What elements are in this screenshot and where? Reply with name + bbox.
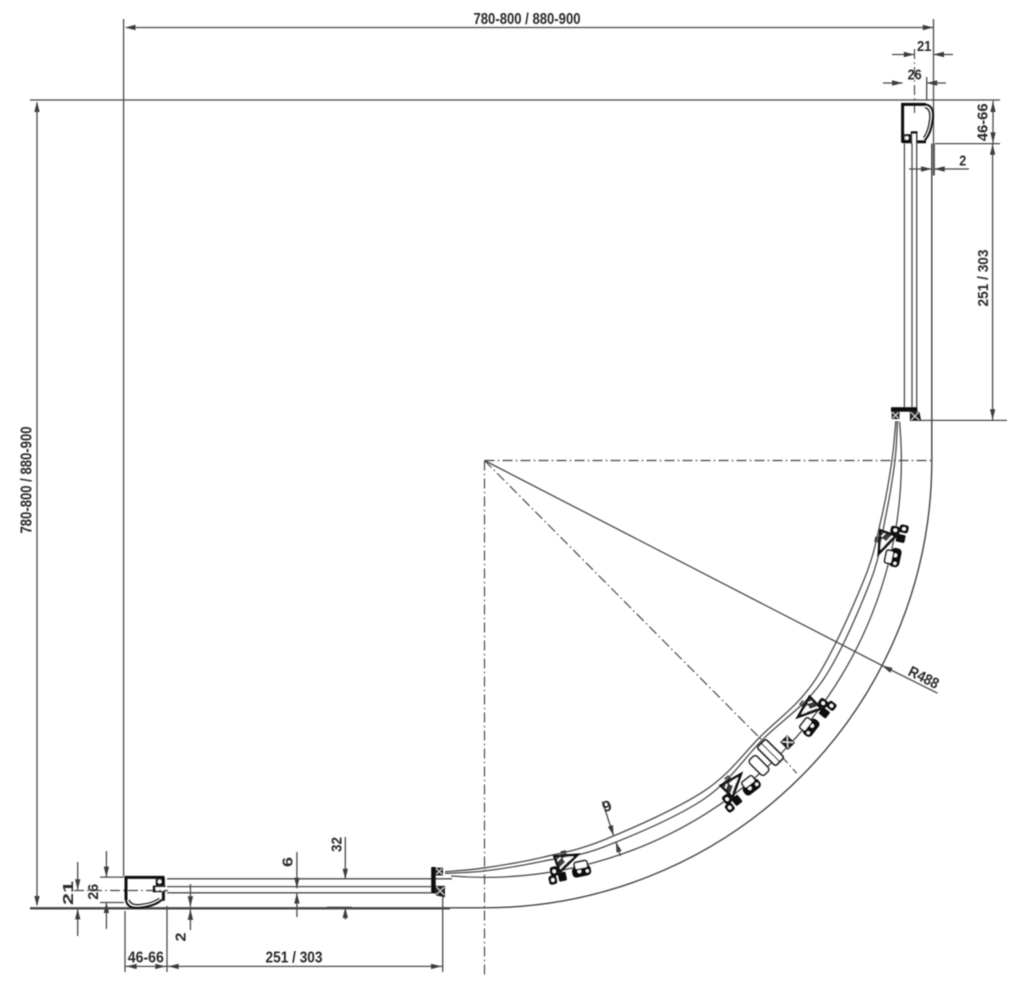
svg-text:R488: R488 bbox=[905, 663, 941, 692]
svg-text:21: 21 bbox=[917, 38, 932, 55]
svg-text:21: 21 bbox=[60, 880, 77, 905]
svg-text:780-800 / 880-900: 780-800 / 880-900 bbox=[19, 427, 36, 534]
svg-text:251 / 303: 251 / 303 bbox=[975, 250, 992, 307]
svg-text:2: 2 bbox=[173, 933, 190, 942]
svg-text:251 / 303: 251 / 303 bbox=[266, 949, 323, 966]
svg-text:6: 6 bbox=[280, 857, 297, 867]
svg-text:32: 32 bbox=[329, 837, 346, 852]
svg-text:9: 9 bbox=[600, 797, 614, 816]
svg-text:46-66: 46-66 bbox=[975, 103, 992, 141]
svg-text:2: 2 bbox=[959, 153, 966, 170]
svg-text:26: 26 bbox=[85, 884, 102, 900]
svg-text:780-800 / 880-900: 780-800 / 880-900 bbox=[474, 11, 581, 28]
svg-text:46-66: 46-66 bbox=[128, 949, 164, 966]
